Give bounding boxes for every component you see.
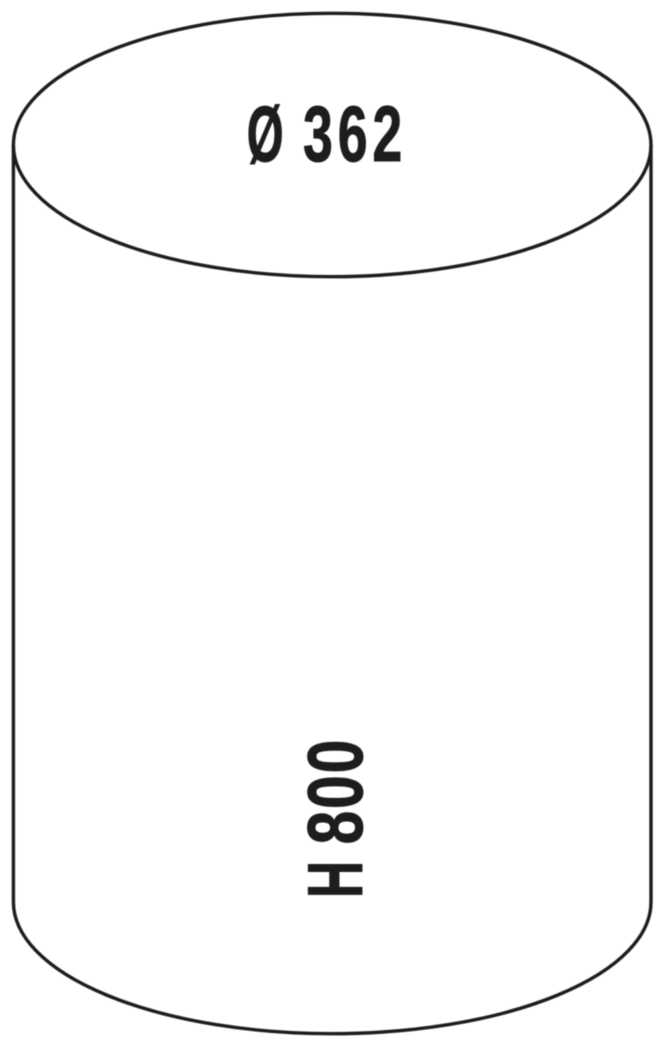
svg-text:H: H [292, 861, 379, 898]
svg-text:362: 362 [303, 91, 407, 179]
svg-text:800: 800 [292, 738, 379, 845]
svg-text:Ø: Ø [247, 89, 284, 178]
